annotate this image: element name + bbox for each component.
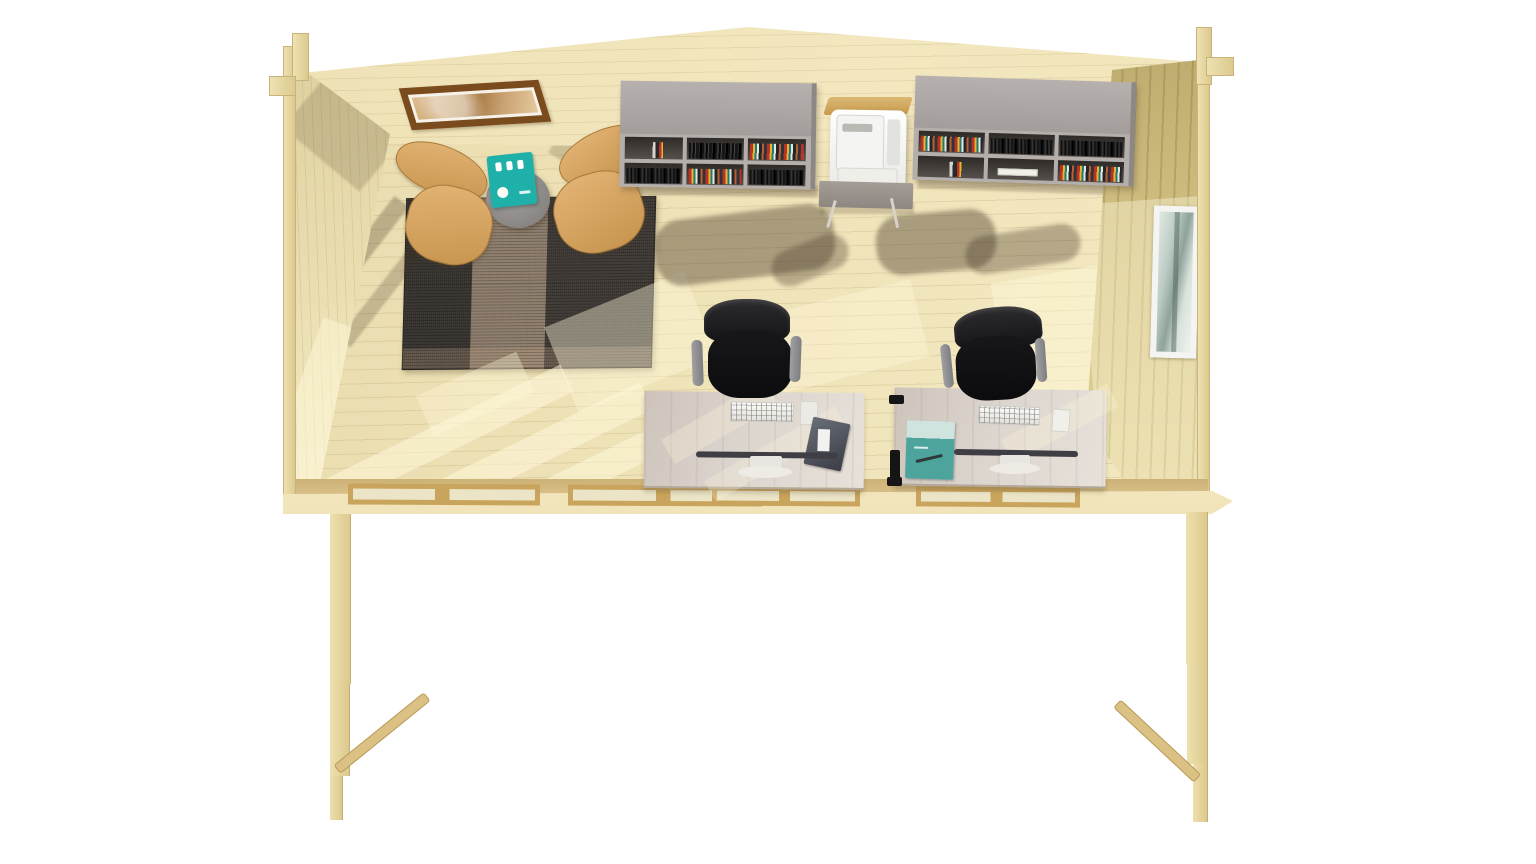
books [688, 143, 742, 159]
caption-dash [519, 190, 530, 194]
books [990, 138, 1052, 155]
logo-circle-icon [497, 186, 509, 198]
shelf-cell [748, 164, 806, 186]
desk-clamp [889, 395, 904, 404]
armrest [789, 336, 802, 382]
window-glass-reflection [1171, 212, 1180, 352]
shelf-cell [918, 156, 985, 179]
books [750, 144, 804, 160]
monitor-base [990, 463, 1040, 474]
magazine-cover-graphic [817, 429, 830, 451]
support-leg-left [330, 776, 343, 820]
books [688, 168, 742, 184]
books [750, 169, 804, 185]
printer [829, 109, 906, 190]
corner-joint-tr [1196, 27, 1212, 85]
pictogram-icon [517, 160, 524, 170]
shelf-cell [987, 158, 1054, 181]
bookshelf-compartments [619, 134, 811, 190]
office-chair-seat [954, 334, 1037, 402]
bookshelf-right [912, 76, 1136, 187]
books [1059, 165, 1121, 182]
books [920, 136, 982, 153]
left-wall-edge [283, 46, 296, 513]
pen [916, 454, 943, 463]
artwork-print [412, 90, 539, 119]
keyboard [730, 401, 794, 422]
books [920, 161, 982, 178]
cabin-render [0, 0, 1536, 864]
teal-brochure [486, 152, 537, 209]
shelf-cell [1058, 135, 1125, 158]
monitor-base [738, 466, 792, 478]
poster-text-line [914, 446, 928, 448]
books [627, 142, 681, 158]
corner-joint-tr-tab [1206, 57, 1234, 76]
office-chair-seat [708, 330, 792, 398]
shelf-cell [748, 138, 806, 160]
books [1060, 140, 1122, 157]
desk-clamp [887, 477, 902, 486]
support-leg-right [1186, 512, 1208, 664]
teal-poster [905, 420, 955, 480]
pictogram-icon [495, 162, 502, 172]
shelf-cell [686, 138, 744, 160]
printer-slot [842, 124, 872, 133]
printer-side-panel [887, 119, 901, 165]
right-wall-edge [1197, 58, 1210, 512]
front-window-plan [348, 483, 540, 505]
paper-stack [997, 168, 1037, 177]
shelf-cell [988, 133, 1055, 156]
support-leg-right [1187, 664, 1208, 764]
corner-joint-tl [292, 33, 309, 81]
shelf-cell [625, 137, 683, 159]
bookshelf-compartments [912, 128, 1130, 187]
books [626, 168, 680, 184]
front-window-plan [916, 486, 1080, 507]
support-leg-left [330, 514, 351, 684]
shelf-cell [918, 131, 985, 154]
shelf-cell [624, 162, 682, 184]
bookshelf-left [619, 81, 816, 190]
shelf-cell [1057, 160, 1124, 183]
side-window [1150, 205, 1200, 358]
keyboard [978, 405, 1041, 426]
framed-artwork [399, 80, 552, 131]
armrest [691, 340, 704, 386]
corner-joint-tl-tab [269, 76, 296, 96]
pictogram-icon [506, 161, 513, 171]
shelf-cell [686, 163, 744, 185]
notepad [1051, 408, 1071, 432]
